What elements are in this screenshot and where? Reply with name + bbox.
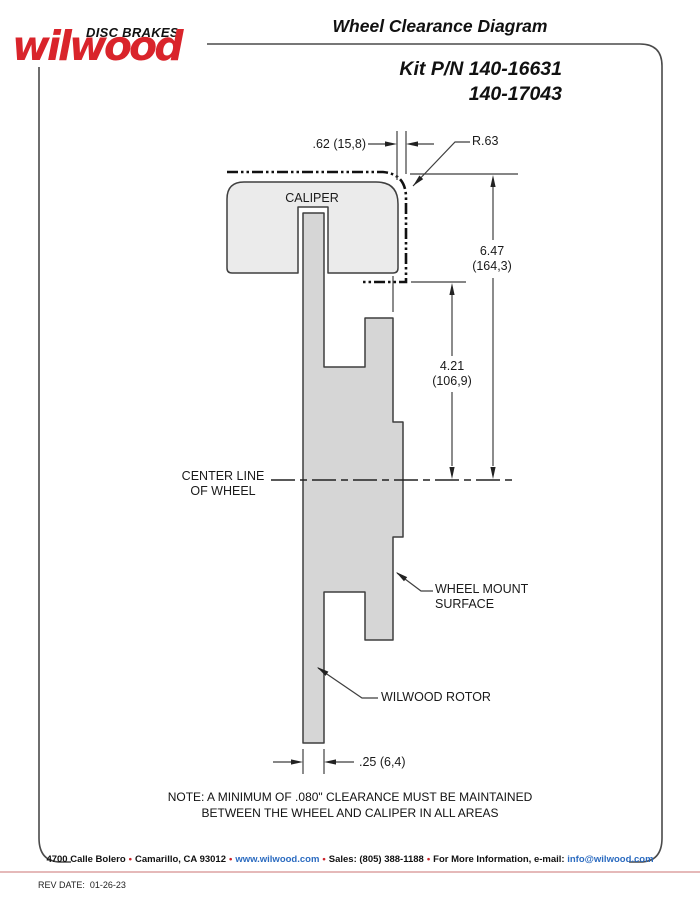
kit-part-numbers: Kit P/N 140-16631 140-17043 xyxy=(340,57,562,108)
dim-caliper-wheel-gap: .62 (15,8) xyxy=(282,137,366,152)
rotor-label: WILWOOD ROTOR xyxy=(381,690,491,705)
kit-line-1: Kit P/N 140-16631 xyxy=(340,57,562,82)
page: { "logo": { "brand": "wilwood", "tagline… xyxy=(0,0,700,906)
footer-email-link[interactable]: info@wilwood.com xyxy=(567,854,653,865)
dim-647-mm: (164,3) xyxy=(460,259,524,274)
wheel-mount-surface-label: WHEEL MOUNT SURFACE xyxy=(435,582,528,612)
caliper-label: CALIPER xyxy=(268,191,356,206)
wheel-mount-label-line1: WHEEL MOUNT xyxy=(435,582,528,597)
footer-separator: • xyxy=(226,854,235,865)
frame-top-right-border xyxy=(207,44,662,862)
dim-corner-radius: R.63 xyxy=(472,134,498,149)
dim-647-in: 6.47 xyxy=(460,244,524,259)
footer-website-link[interactable]: www.wilwood.com xyxy=(235,854,319,865)
frame-left-border xyxy=(39,67,71,862)
dim-421-in: 4.21 xyxy=(420,359,484,374)
clearance-diagram xyxy=(0,0,700,906)
footer-divider-line xyxy=(0,871,700,873)
dim-rotor-thickness: .25 (6,4) xyxy=(359,755,406,770)
note-line2: BETWEEN THE WHEEL AND CALIPER IN ALL ARE… xyxy=(0,806,700,822)
footer-separator: • xyxy=(126,854,135,865)
dim-caliper-top-to-centerline: 6.47 (164,3) xyxy=(460,244,524,274)
centerline-label-line1: CENTER LINE xyxy=(178,469,268,484)
clearance-note: NOTE: A MINIMUM OF .080" CLEARANCE MUST … xyxy=(0,790,700,821)
kit-line-2: 140-17043 xyxy=(340,82,562,107)
wheel-mount-label-line2: SURFACE xyxy=(435,597,528,612)
centerline-label-line2: OF WHEEL xyxy=(178,484,268,499)
rev-date: REV DATE: 01-26-23 xyxy=(38,880,126,890)
page-title: Wheel Clearance Diagram xyxy=(300,16,580,37)
footer-separator: • xyxy=(424,854,433,865)
centerline-label: CENTER LINE OF WHEEL xyxy=(178,469,268,499)
footer-address: 4700 Calle Bolero xyxy=(46,854,125,865)
footer-more-info: For More Information, e-mail: xyxy=(433,854,564,865)
footer-sales-phone: Sales: (805) 388-1188 xyxy=(329,854,424,865)
rotor-hat-shape xyxy=(303,213,403,743)
note-line1: NOTE: A MINIMUM OF .080" CLEARANCE MUST … xyxy=(0,790,700,806)
footer-separator: • xyxy=(319,854,328,865)
footer-city: Camarillo, CA 93012 xyxy=(135,854,226,865)
dim-mount-to-centerline: 4.21 (106,9) xyxy=(420,359,484,389)
footer-contact-bar: 4700 Calle Bolero•Camarillo, CA 93012•ww… xyxy=(0,854,700,865)
dim-421-mm: (106,9) xyxy=(420,374,484,389)
wilwood-logo: wilwood xyxy=(12,26,181,67)
